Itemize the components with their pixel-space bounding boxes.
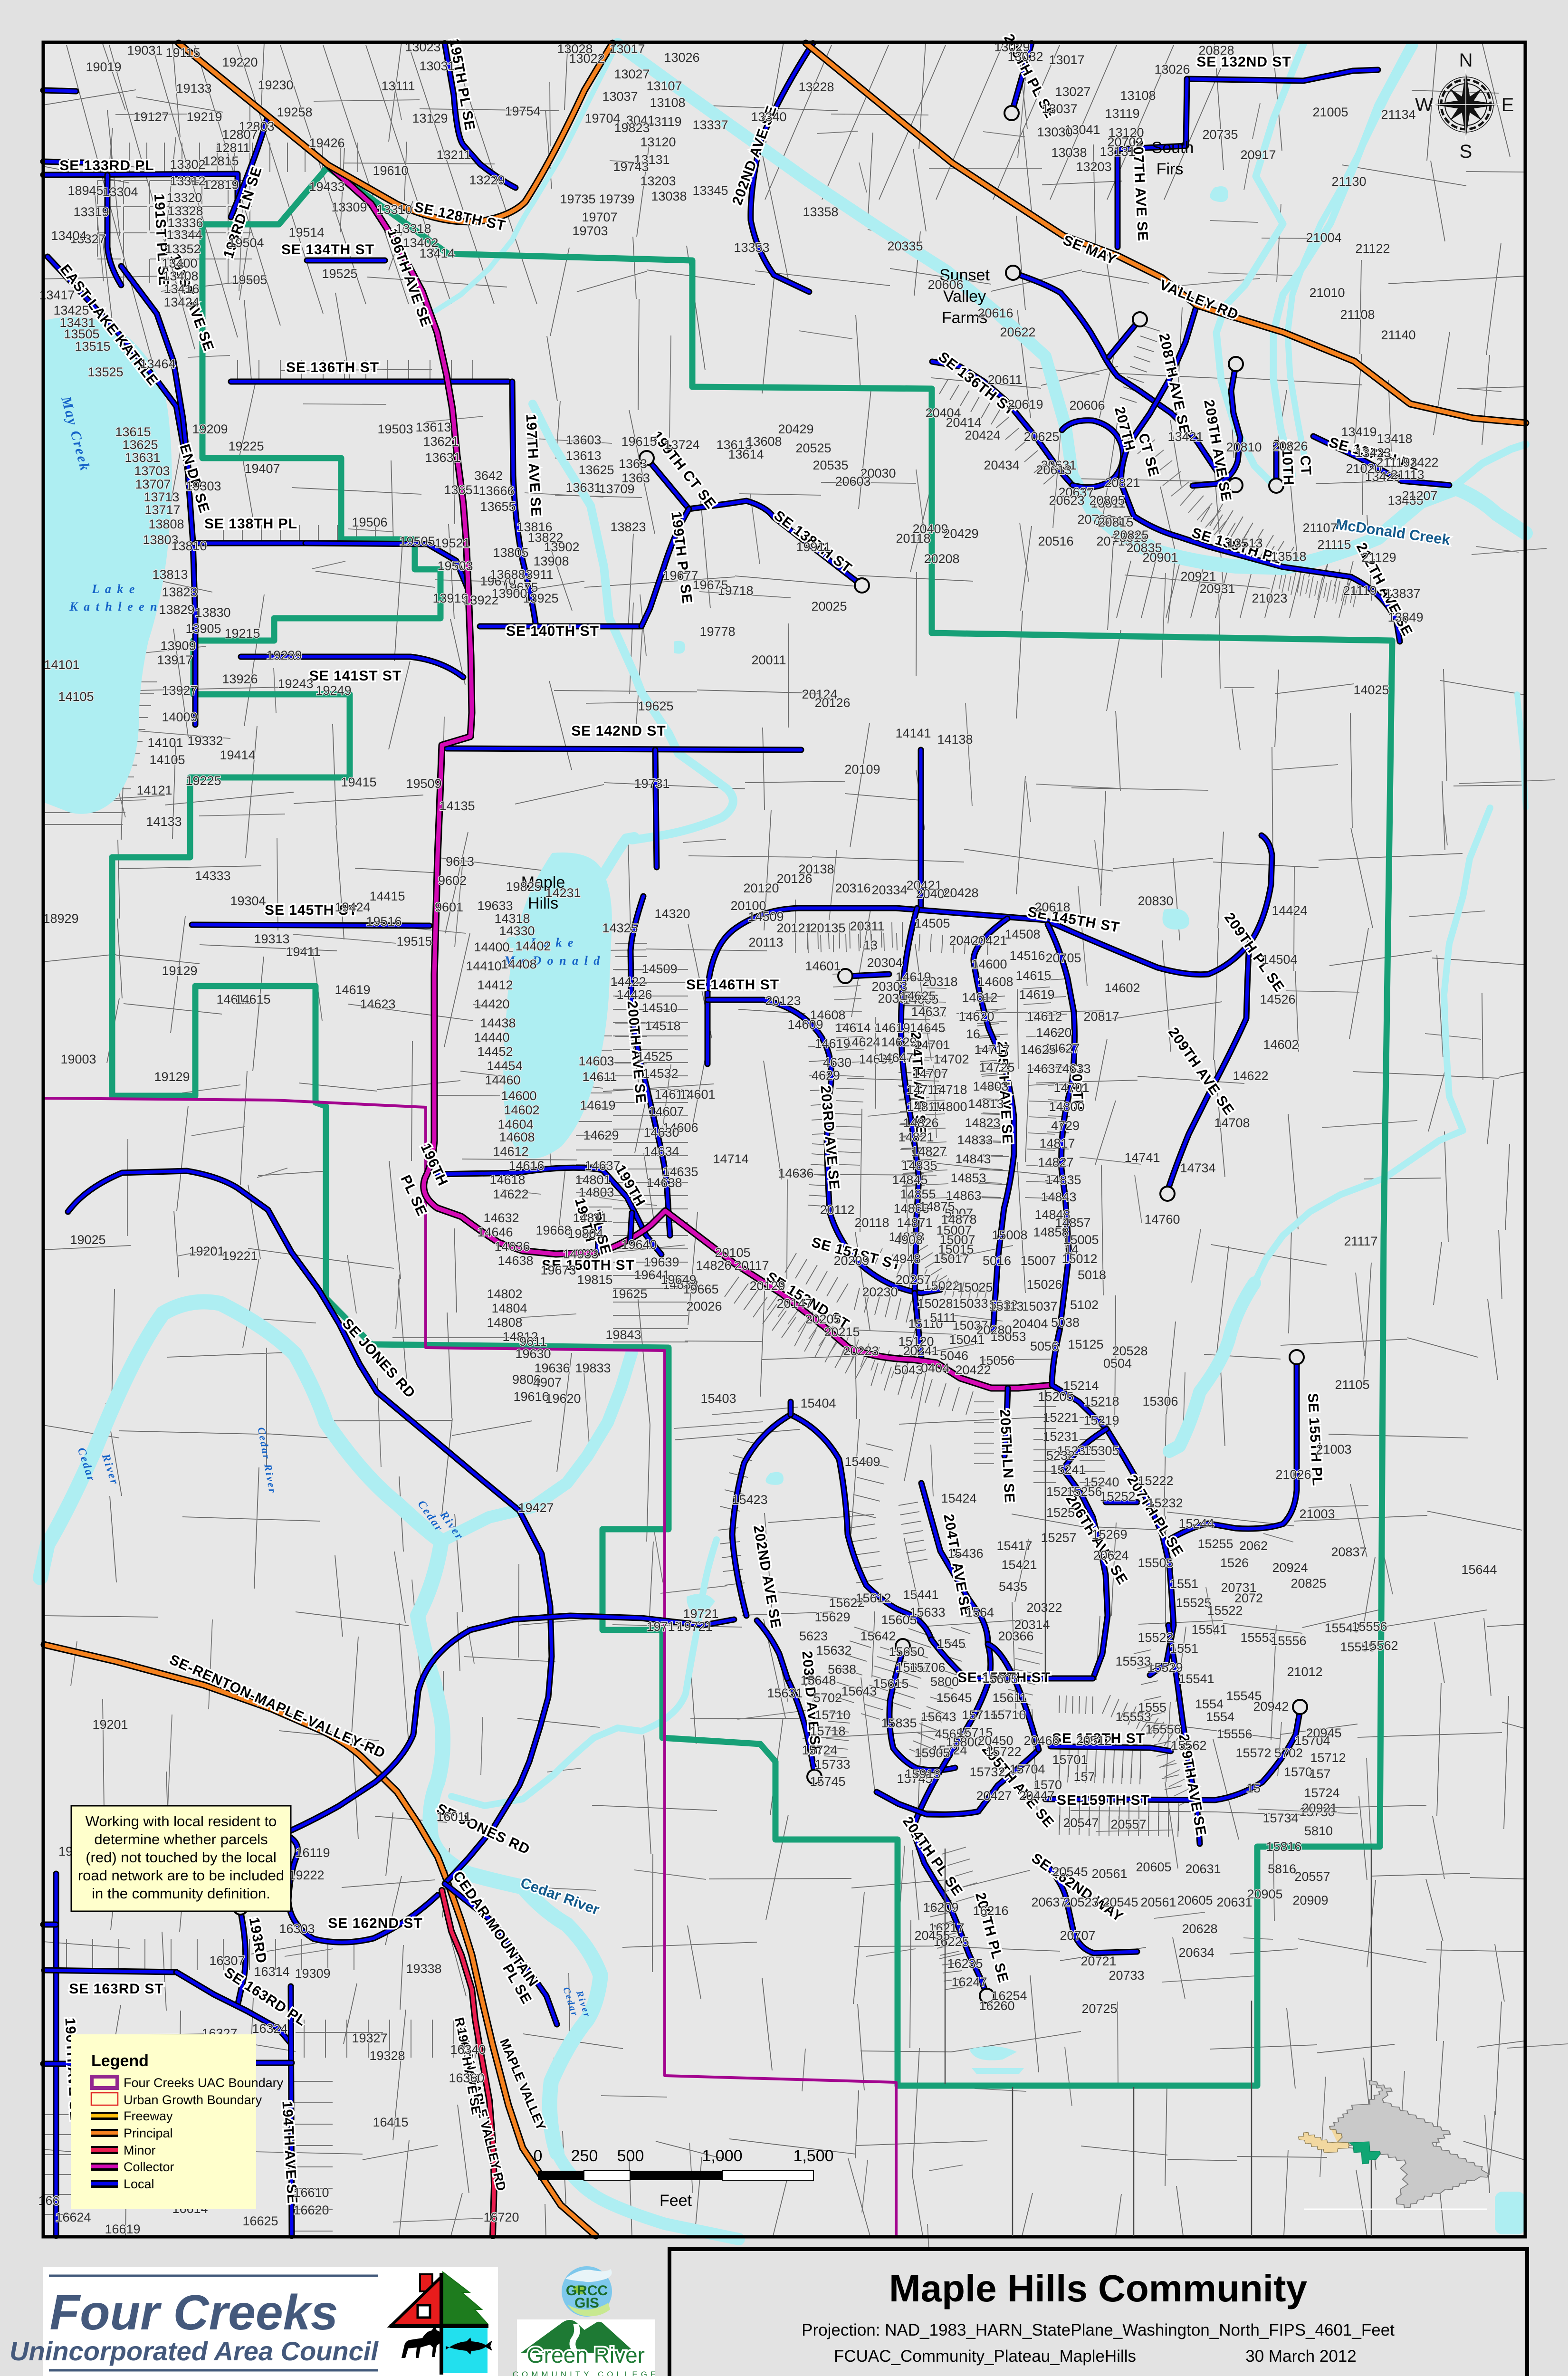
svg-text:19309: 19309 [295, 1966, 330, 1981]
svg-text:20557: 20557 [1110, 1817, 1146, 1831]
svg-text:20605: 20605 [1136, 1860, 1171, 1874]
svg-text:Urban Growth Boundary: Urban Growth Boundary [124, 2093, 262, 2107]
svg-text:19225: 19225 [228, 439, 264, 453]
svg-text:14460: 14460 [485, 1073, 520, 1087]
svg-text:14601: 14601 [679, 1087, 715, 1102]
svg-text:20113: 20113 [748, 935, 783, 949]
svg-text:14878: 14878 [941, 1212, 976, 1226]
svg-text:20603: 20603 [835, 474, 870, 489]
svg-text:Minor: Minor [124, 2143, 156, 2157]
svg-text:12811: 12811 [215, 141, 250, 155]
svg-text:13344: 13344 [166, 228, 202, 242]
svg-text:14823: 14823 [965, 1116, 1000, 1130]
svg-text:20335: 20335 [887, 239, 923, 253]
svg-text:20428: 20428 [943, 886, 978, 900]
svg-text:20733: 20733 [1109, 1968, 1144, 1983]
svg-text:13027: 13027 [614, 67, 650, 81]
svg-text:15423: 15423 [732, 1493, 767, 1507]
svg-text:20825: 20825 [1113, 528, 1148, 542]
svg-text:15255: 15255 [1197, 1537, 1233, 1551]
svg-text:16720: 16720 [483, 2210, 519, 2224]
svg-text:19633: 19633 [477, 899, 513, 913]
svg-text:14009: 14009 [162, 710, 197, 724]
svg-text:14612: 14612 [493, 1144, 528, 1159]
svg-text:20404: 20404 [1012, 1317, 1048, 1331]
svg-text:19610: 19610 [373, 163, 408, 178]
svg-text:14105: 14105 [58, 690, 94, 704]
svg-text:20611: 20611 [987, 373, 1022, 387]
svg-text:15710: 15710 [814, 1708, 850, 1722]
svg-text:1564: 1564 [966, 1605, 994, 1619]
svg-text:13302: 13302 [170, 157, 205, 172]
svg-text:19754: 19754 [505, 104, 540, 118]
svg-text:19665: 19665 [683, 1282, 718, 1296]
svg-text:20105: 20105 [715, 1245, 750, 1260]
svg-text:13418: 13418 [1377, 431, 1412, 446]
svg-text:14402: 14402 [515, 939, 551, 953]
svg-text:21005: 21005 [1312, 105, 1348, 119]
svg-text:20625: 20625 [1023, 430, 1059, 444]
svg-text:21004: 21004 [1306, 230, 1341, 245]
svg-text:20429: 20429 [778, 422, 813, 436]
svg-text:13631: 13631 [565, 480, 601, 495]
svg-text:20705: 20705 [1045, 951, 1081, 965]
svg-text:15645: 15645 [936, 1691, 972, 1705]
svg-text:13309: 13309 [331, 200, 367, 214]
svg-text:13849: 13849 [1387, 610, 1423, 624]
svg-text:14701: 14701 [1053, 1081, 1089, 1095]
svg-text:20616: 20616 [977, 306, 1013, 320]
svg-text:15816: 15816 [1266, 1839, 1301, 1854]
svg-text:14333: 14333 [195, 869, 230, 883]
svg-text:15409: 15409 [844, 1455, 880, 1469]
svg-text:14603: 14603 [578, 1054, 614, 1068]
svg-text:9611: 9611 [519, 1334, 547, 1349]
svg-text:14826: 14826 [903, 1116, 938, 1130]
svg-text:Collector: Collector [124, 2160, 174, 2174]
svg-text:14647: 14647 [878, 1051, 913, 1065]
svg-text:12819: 12819 [203, 178, 239, 192]
svg-text:19239: 19239 [266, 648, 302, 662]
svg-text:14412: 14412 [477, 978, 513, 992]
svg-text:20945: 20945 [1306, 1726, 1341, 1740]
svg-text:14105: 14105 [149, 753, 185, 767]
svg-text:14637: 14637 [1026, 1062, 1062, 1076]
svg-text:14620: 14620 [1036, 1025, 1071, 1040]
svg-text:Legend: Legend [91, 2052, 149, 2070]
svg-text:15417: 15417 [996, 1539, 1032, 1553]
svg-text:15424: 15424 [941, 1491, 976, 1505]
svg-text:20525: 20525 [795, 441, 831, 455]
svg-text:21207: 21207 [1402, 489, 1437, 503]
svg-text:1363: 1363 [621, 471, 650, 485]
svg-text:1526: 1526 [1220, 1556, 1249, 1570]
svg-text:20619: 20619 [1007, 397, 1043, 412]
svg-text:20545: 20545 [1052, 1865, 1088, 1879]
svg-text:14701: 14701 [914, 1038, 950, 1052]
svg-text:19031: 19031 [127, 43, 163, 57]
svg-text:15650: 15650 [889, 1645, 924, 1659]
svg-text:14619: 14619 [580, 1098, 615, 1112]
svg-text:13312: 13312 [170, 174, 205, 188]
svg-text:19133: 19133 [176, 81, 211, 96]
svg-text:20821: 20821 [1104, 476, 1140, 490]
svg-text:14637: 14637 [584, 1159, 620, 1173]
svg-text:19129: 19129 [162, 964, 197, 978]
svg-text:13120: 13120 [640, 135, 676, 149]
svg-text:5016: 5016 [983, 1254, 1011, 1268]
svg-text:14612: 14612 [1026, 1009, 1062, 1024]
svg-text:4629: 4629 [812, 1068, 840, 1083]
svg-text:20280: 20280 [976, 1323, 1012, 1337]
svg-text:15306: 15306 [1142, 1394, 1178, 1408]
svg-text:14871: 14871 [897, 1216, 932, 1230]
svg-text:19115: 19115 [165, 46, 200, 60]
svg-text:20429: 20429 [943, 527, 978, 541]
svg-text:15026: 15026 [1026, 1277, 1062, 1292]
svg-text:19677: 19677 [662, 568, 698, 583]
svg-text:13419: 13419 [1341, 425, 1377, 439]
svg-text:15231: 15231 [1042, 1429, 1078, 1444]
svg-text:16: 16 [966, 1027, 980, 1041]
svg-text:19230: 19230 [258, 78, 293, 92]
svg-text:13108: 13108 [650, 96, 685, 110]
svg-text:COMMUNITY COLLEGE: COMMUNITY COLLEGE [513, 2370, 660, 2376]
svg-text:20535: 20535 [813, 458, 848, 472]
svg-text:14636: 14636 [778, 1166, 813, 1180]
svg-text:21117: 21117 [1344, 1234, 1377, 1248]
svg-text:1525: 1525 [1046, 1505, 1075, 1520]
svg-text:14330: 14330 [499, 924, 535, 938]
svg-text:19019: 19019 [86, 60, 121, 74]
svg-text:19426: 19426 [309, 136, 344, 150]
svg-text:3642: 3642 [474, 469, 503, 483]
svg-text:13345: 13345 [692, 183, 728, 198]
svg-text:14625: 14625 [1020, 1043, 1056, 1057]
svg-text:20631: 20631 [1216, 1895, 1252, 1909]
svg-text:13310: 13310 [376, 202, 412, 217]
svg-text:13031: 13031 [419, 59, 455, 73]
svg-text:13203: 13203 [1076, 160, 1111, 174]
svg-text:13902: 13902 [544, 540, 579, 554]
svg-text:20466: 20466 [1023, 1734, 1059, 1748]
svg-text:166: 166 [38, 2194, 59, 2208]
svg-text:13: 13 [863, 938, 878, 952]
svg-text:20109: 20109 [844, 762, 880, 776]
svg-text:14760: 14760 [1144, 1212, 1180, 1226]
svg-text:13211: 13211 [436, 148, 471, 162]
svg-text:15913: 15913 [905, 1767, 940, 1781]
svg-text:Principal: Principal [124, 2126, 173, 2140]
svg-text:19407: 19407 [244, 461, 280, 476]
svg-text:14607: 14607 [648, 1104, 684, 1119]
svg-text:20123: 20123 [765, 994, 801, 1008]
svg-text:19243: 19243 [277, 677, 313, 691]
svg-text:14845: 14845 [892, 1173, 927, 1187]
svg-text:13404: 13404 [51, 229, 86, 243]
svg-text:14933: 14933 [563, 1247, 598, 1261]
svg-text:1363: 1363 [619, 457, 647, 471]
svg-text:1,000: 1,000 [702, 2147, 742, 2165]
svg-text:13603: 13603 [565, 433, 601, 447]
svg-text:500: 500 [617, 2147, 644, 2165]
svg-text:20117: 20117 [734, 1258, 769, 1273]
svg-text:20025: 20025 [811, 599, 847, 613]
svg-text:14509: 14509 [641, 962, 677, 976]
svg-text:14619: 14619 [895, 970, 931, 984]
svg-text:16360: 16360 [449, 2071, 484, 2085]
svg-text:15522: 15522 [1207, 1603, 1243, 1618]
svg-text:14320: 14320 [654, 907, 690, 921]
svg-text:14410: 14410 [466, 959, 501, 973]
svg-text:4948: 4948 [892, 1252, 921, 1266]
svg-text:20208: 20208 [924, 552, 959, 566]
svg-text:14452: 14452 [477, 1044, 513, 1059]
svg-text:14811: 14811 [573, 1211, 607, 1225]
svg-text:19778: 19778 [699, 624, 735, 639]
svg-text:14619: 14619 [874, 1021, 910, 1035]
svg-text:15533: 15533 [1115, 1654, 1151, 1668]
svg-text:14725: 14725 [979, 1060, 1014, 1074]
svg-text:L a k e: L a k e [92, 582, 136, 596]
svg-text:14602: 14602 [1104, 981, 1140, 995]
svg-text:14802: 14802 [487, 1287, 522, 1301]
svg-text:Freeway: Freeway [124, 2109, 173, 2123]
svg-text:15232: 15232 [1147, 1496, 1183, 1510]
svg-text:20909: 20909 [1292, 1893, 1328, 1907]
svg-text:14615: 14615 [235, 992, 270, 1006]
svg-text:13823: 13823 [610, 520, 646, 534]
svg-text:13030: 13030 [1037, 125, 1072, 139]
svg-text:19625: 19625 [612, 1287, 647, 1301]
svg-text:15: 15 [1246, 1781, 1261, 1795]
svg-text:20447: 20447 [1019, 1789, 1054, 1803]
svg-text:14734: 14734 [1180, 1161, 1215, 1175]
svg-text:13022: 13022 [569, 51, 604, 66]
svg-text:20547: 20547 [1063, 1816, 1099, 1830]
svg-text:20921: 20921 [1301, 1801, 1337, 1815]
svg-text:Green River: Green River [527, 2343, 645, 2367]
svg-text:19823: 19823 [614, 121, 650, 135]
svg-text:14618: 14618 [489, 1173, 525, 1187]
svg-text:19521: 19521 [434, 536, 470, 550]
svg-text:15541: 15541 [1191, 1622, 1227, 1637]
svg-text:14800: 14800 [1049, 1100, 1084, 1114]
svg-text:14623: 14623 [360, 997, 395, 1011]
svg-text:13400: 13400 [162, 256, 197, 270]
svg-text:14101: 14101 [44, 658, 79, 672]
svg-text:15732: 15732 [969, 1765, 1005, 1779]
svg-text:13625: 13625 [578, 463, 614, 477]
svg-text:21108: 21108 [1340, 307, 1375, 322]
svg-text:19313: 19313 [254, 932, 289, 946]
svg-text:19222: 19222 [288, 1868, 324, 1882]
svg-text:15905: 15905 [914, 1746, 950, 1760]
svg-text:20434: 20434 [984, 458, 1019, 472]
svg-text:21026: 21026 [1275, 1467, 1311, 1482]
svg-text:20230: 20230 [862, 1285, 898, 1299]
svg-text:21122: 21122 [1355, 241, 1390, 256]
svg-text:16610: 16610 [293, 2185, 329, 2200]
svg-text:5800: 5800 [930, 1675, 959, 1689]
svg-text:13038: 13038 [1051, 145, 1087, 160]
svg-text:16625: 16625 [242, 2214, 278, 2228]
svg-text:20112: 20112 [820, 1203, 854, 1217]
svg-text:14525: 14525 [637, 1049, 672, 1063]
svg-text:19327: 19327 [352, 2031, 387, 2045]
svg-text:14645: 14645 [909, 1021, 945, 1035]
svg-text:14611: 14611 [582, 1070, 617, 1084]
svg-text:13707: 13707 [135, 477, 171, 491]
svg-text:19615: 19615 [621, 434, 657, 449]
svg-text:14629: 14629 [583, 1128, 619, 1142]
svg-text:9602: 9602 [438, 873, 467, 888]
svg-text:13037: 13037 [602, 89, 638, 104]
svg-text:5702: 5702 [1274, 1746, 1303, 1760]
svg-text:21115: 21115 [1317, 537, 1351, 552]
svg-text:14853: 14853 [950, 1171, 986, 1185]
svg-text:20129: 20129 [749, 1279, 785, 1293]
svg-text:15244: 15244 [1178, 1516, 1214, 1531]
svg-text:13228: 13228 [798, 80, 834, 94]
svg-text:19328: 19328 [369, 2049, 405, 2063]
svg-text:15025: 15025 [957, 1280, 993, 1294]
svg-text:14808: 14808 [487, 1315, 522, 1330]
svg-text:14835: 14835 [1045, 1173, 1081, 1187]
svg-text:20613: 20613 [1036, 463, 1071, 477]
svg-text:20931: 20931 [1199, 582, 1235, 596]
svg-text:4907: 4907 [533, 1375, 562, 1389]
svg-text:16247: 16247 [951, 1975, 987, 1989]
svg-text:157: 157 [1309, 1767, 1330, 1781]
svg-text:14637: 14637 [911, 1005, 947, 1019]
svg-text:13927: 13927 [162, 683, 197, 698]
svg-text:20322: 20322 [1026, 1600, 1062, 1615]
svg-text:15404: 15404 [800, 1396, 836, 1410]
svg-text:20512: 20512 [1076, 1734, 1111, 1748]
svg-text:4908: 4908 [894, 1233, 923, 1247]
svg-text:13837: 13837 [1385, 586, 1420, 601]
svg-text:14843: 14843 [1041, 1190, 1076, 1204]
svg-text:20334: 20334 [871, 883, 907, 897]
svg-text:14415: 14415 [369, 889, 405, 903]
svg-text:14424: 14424 [1272, 903, 1307, 918]
svg-text:20316: 20316 [835, 881, 870, 895]
svg-text:SE 134TH ST: SE 134TH ST [281, 242, 374, 258]
svg-text:15706: 15706 [909, 1660, 945, 1675]
svg-text:1545: 1545 [937, 1637, 966, 1651]
svg-text:1551: 1551 [1170, 1577, 1198, 1591]
svg-text:20118: 20118 [896, 531, 930, 546]
svg-text:Four Creeks: Four Creeks [50, 2285, 338, 2340]
svg-text:15525: 15525 [1176, 1596, 1211, 1610]
svg-text:20421: 20421 [971, 933, 1007, 948]
svg-text:SE 140TH ST: SE 140TH ST [506, 623, 599, 639]
svg-text:15556: 15556 [1216, 1727, 1252, 1741]
svg-text:13631: 13631 [425, 450, 460, 465]
svg-text:13111: 13111 [381, 79, 415, 93]
svg-text:13724: 13724 [664, 438, 699, 452]
svg-text:15648: 15648 [800, 1673, 836, 1687]
svg-text:19911: 19911 [796, 540, 831, 554]
svg-text:14422: 14422 [610, 975, 646, 989]
svg-text:20223: 20223 [843, 1344, 879, 1358]
svg-text:13666: 13666 [478, 484, 514, 498]
svg-text:14813: 14813 [968, 1097, 1004, 1111]
svg-text:14707: 14707 [912, 1066, 948, 1081]
svg-text:SE 162ND ST: SE 162ND ST [328, 1916, 422, 1931]
svg-text:14420: 14420 [474, 997, 509, 1011]
svg-text:13518: 13518 [1271, 549, 1306, 564]
svg-text:19630: 19630 [515, 1347, 551, 1361]
svg-text:15218: 15218 [1083, 1394, 1119, 1408]
svg-text:15612: 15612 [855, 1591, 891, 1605]
svg-text:19505: 19505 [231, 273, 267, 287]
svg-text:14821: 14821 [898, 1130, 934, 1144]
svg-text:19673: 19673 [540, 1263, 576, 1277]
svg-text:14634: 14634 [643, 1144, 679, 1159]
svg-text:14608: 14608 [977, 975, 1013, 989]
svg-text:19509: 19509 [406, 776, 441, 791]
svg-text:15556: 15556 [1145, 1722, 1181, 1736]
svg-text:13717: 13717 [144, 503, 180, 517]
svg-text:16340: 16340 [450, 2042, 486, 2057]
svg-text:20810: 20810 [1226, 440, 1262, 454]
svg-text:SE 133RD PL: SE 133RD PL [59, 158, 154, 173]
svg-text:16314: 16314 [254, 1964, 289, 1979]
svg-text:14600: 14600 [971, 957, 1007, 971]
svg-text:20241: 20241 [903, 1344, 938, 1358]
svg-text:20826: 20826 [1272, 439, 1308, 453]
svg-text:19721: 19721 [677, 1619, 712, 1634]
svg-text:19220: 19220 [222, 55, 258, 69]
svg-text:20942: 20942 [1253, 1699, 1289, 1714]
svg-text:13107: 13107 [646, 79, 682, 93]
svg-text:2062: 2062 [1239, 1539, 1268, 1553]
svg-text:21119: 21119 [1343, 584, 1377, 598]
svg-text:20120: 20120 [743, 881, 779, 895]
svg-text:15505: 15505 [1138, 1556, 1173, 1570]
svg-text:14601: 14601 [805, 959, 841, 973]
svg-text:SE 142ND ST: SE 142ND ST [571, 723, 666, 739]
svg-text:250: 250 [571, 2147, 598, 2165]
svg-text:14614: 14614 [835, 1021, 870, 1035]
svg-text:19215: 19215 [224, 626, 260, 641]
svg-text:19515: 19515 [396, 934, 432, 948]
svg-text:13900: 13900 [491, 586, 527, 601]
svg-text:20545: 20545 [1102, 1895, 1138, 1909]
svg-text:13421: 13421 [1167, 430, 1203, 444]
svg-text:15257: 15257 [1041, 1531, 1076, 1545]
svg-text:14608: 14608 [499, 1130, 535, 1144]
svg-text:13108: 13108 [1120, 88, 1156, 103]
svg-text:13017: 13017 [1049, 53, 1084, 67]
svg-text:20147: 20147 [776, 1296, 812, 1311]
svg-text:15403: 15403 [700, 1391, 736, 1406]
svg-text:determine whether parcels: determine whether parcels [94, 1831, 268, 1848]
svg-text:14843: 14843 [955, 1152, 991, 1166]
svg-text:15745: 15745 [810, 1774, 845, 1789]
svg-text:16620: 16620 [293, 2203, 329, 2217]
svg-text:14505: 14505 [914, 916, 950, 930]
svg-text:21130: 21130 [1331, 174, 1366, 189]
svg-text:20830: 20830 [1138, 894, 1173, 908]
svg-text:19640: 19640 [621, 1237, 657, 1252]
svg-text:19505: 19505 [399, 534, 435, 548]
svg-text:13688: 13688 [489, 567, 525, 582]
svg-text:20209: 20209 [833, 1254, 869, 1268]
svg-text:20450: 20450 [977, 1734, 1013, 1748]
